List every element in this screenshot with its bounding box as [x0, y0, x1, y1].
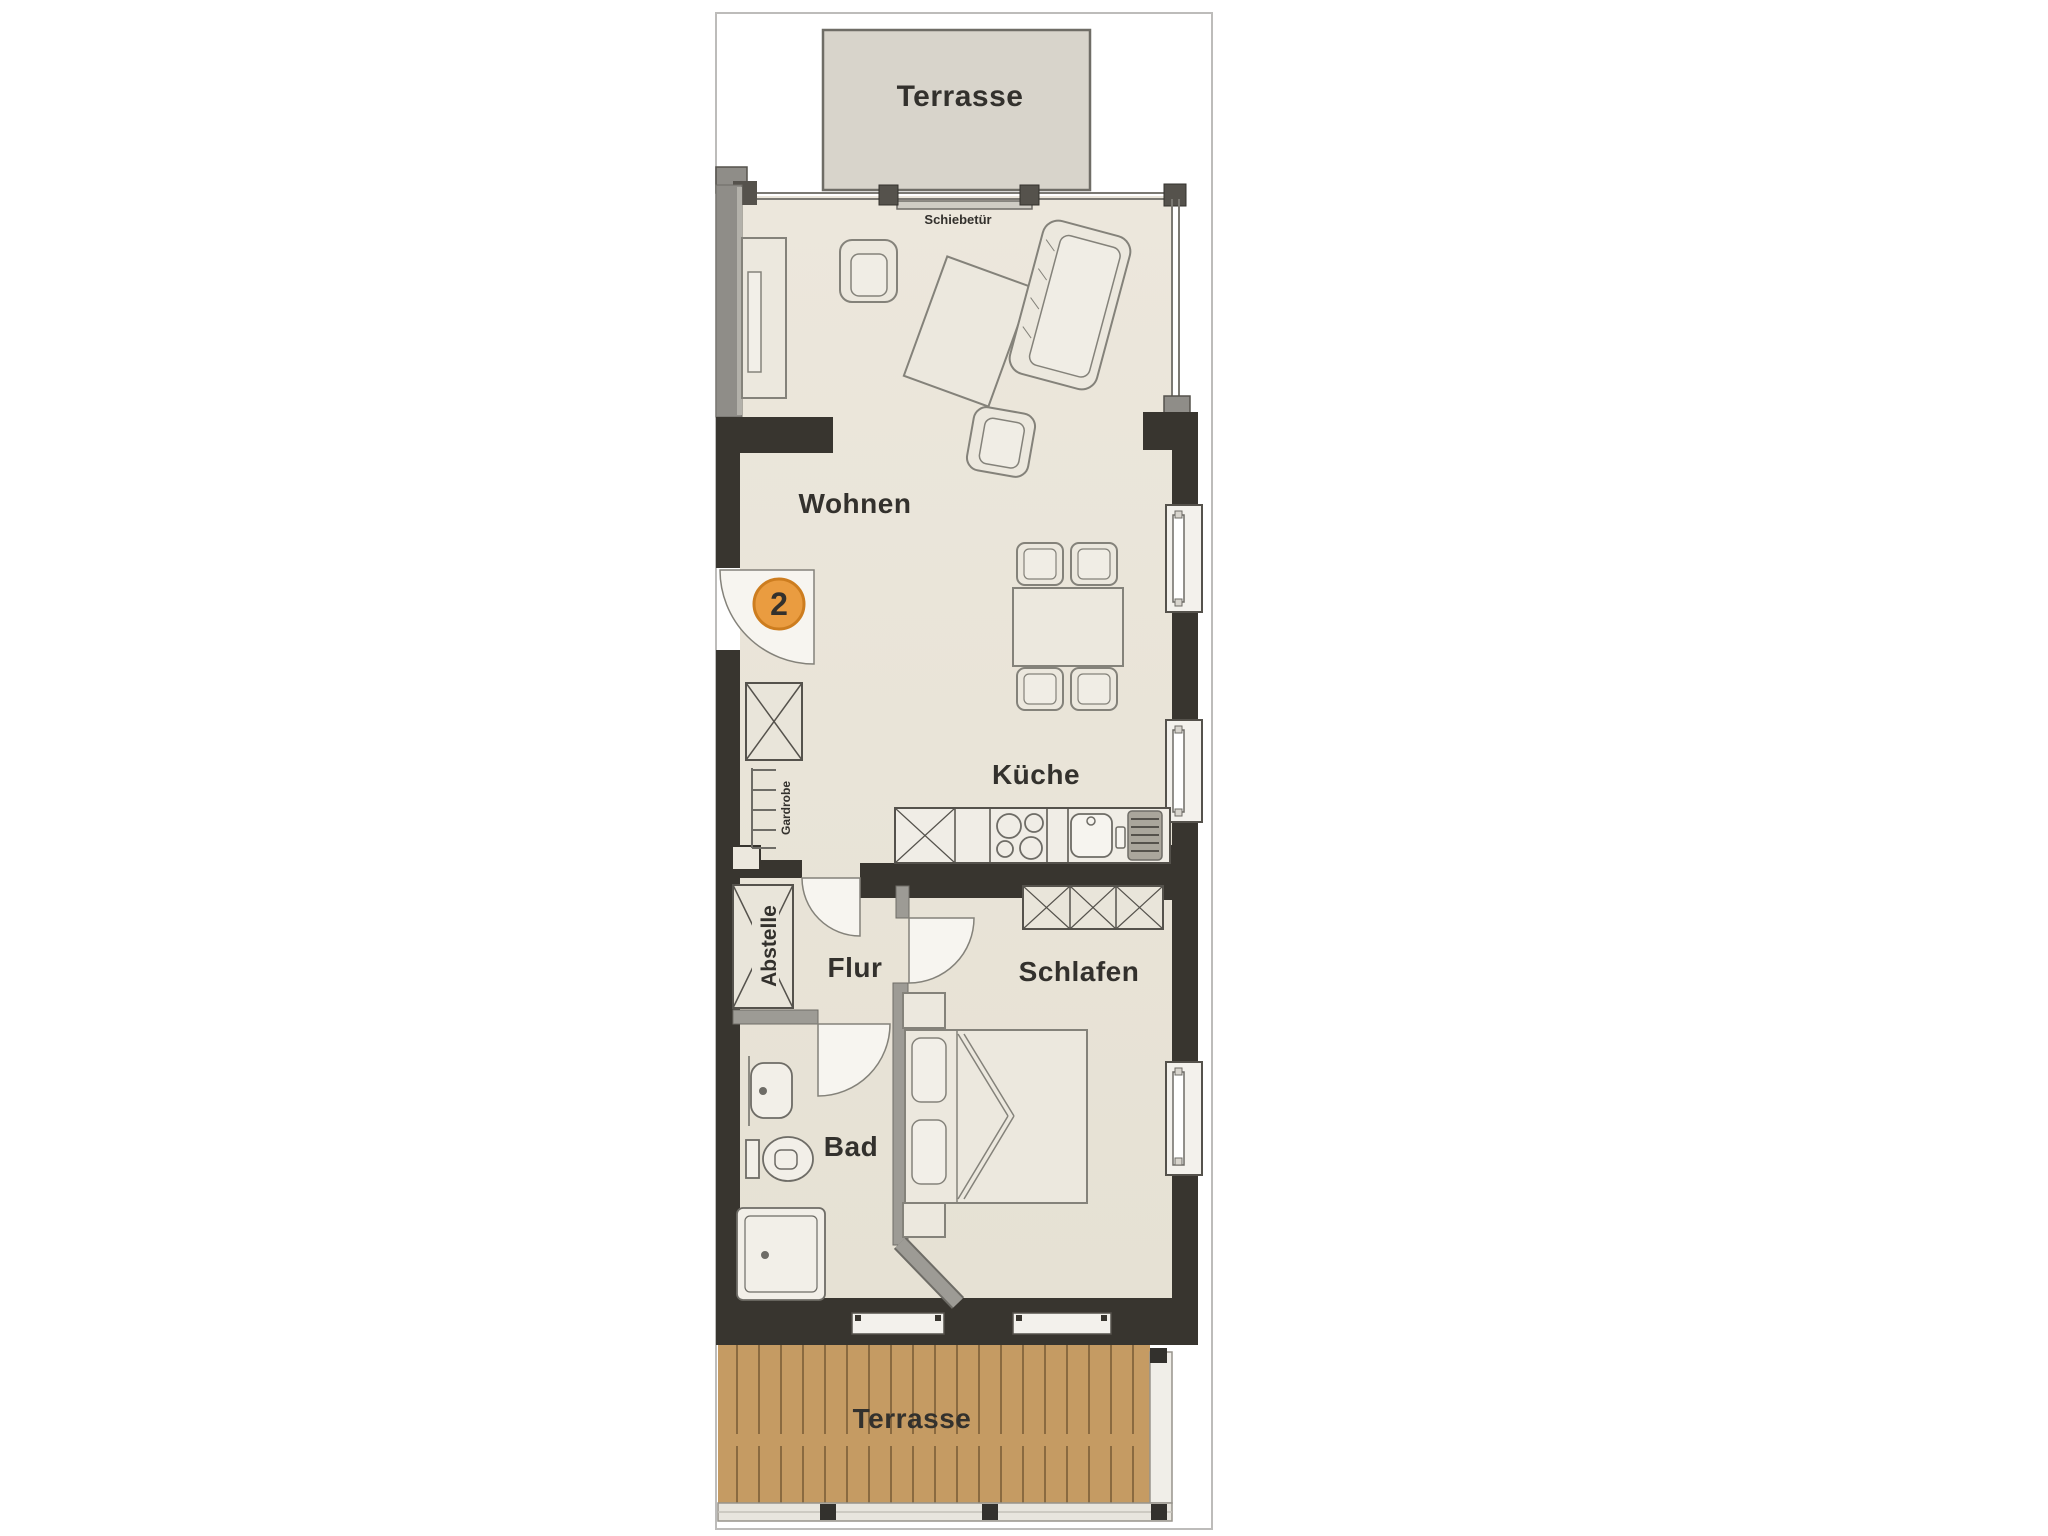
shower — [737, 1208, 825, 1300]
railing-post — [982, 1504, 998, 1520]
double-bed — [905, 1030, 1087, 1203]
wall-niche — [732, 846, 760, 870]
wall-living-left-stub — [716, 417, 833, 453]
coat-closet — [746, 683, 802, 760]
armchair-bottom — [965, 405, 1037, 479]
room-label-bedroom: Schlafen — [1019, 956, 1140, 987]
window-kitchen — [1166, 720, 1202, 822]
front-wall-post-right — [1020, 185, 1039, 205]
railing-post — [1150, 1348, 1167, 1363]
partition-bedroom-door-jamb — [896, 886, 909, 918]
unit-badge-number: 2 — [770, 586, 788, 622]
railing-post — [820, 1504, 836, 1520]
terrace-threshold-right — [1013, 1313, 1111, 1334]
wall-right-3 — [1172, 822, 1198, 1062]
kitchen-appliance — [1128, 811, 1162, 860]
sliding-door-track — [897, 201, 1032, 209]
dining-chair — [1071, 668, 1117, 710]
room-label-bath: Bad — [824, 1131, 878, 1162]
nightstand-top — [903, 993, 945, 1028]
room-label-hall: Flur — [828, 952, 883, 983]
room-label-storage: Abstelle — [758, 905, 781, 987]
terrace-threshold-left — [852, 1313, 944, 1334]
wall-bottom — [716, 1298, 1198, 1345]
floorplan-svg: Terrasse Schiebetür — [0, 0, 2048, 1536]
wall-right-2 — [1172, 612, 1198, 720]
armchair-top — [840, 240, 897, 302]
dining-chair — [1071, 543, 1117, 585]
floorplan-page: Terrasse Schiebetür — [0, 0, 2048, 1536]
dining-chair — [1017, 668, 1063, 710]
bedroom-wardrobe — [1023, 886, 1163, 929]
bath-sink — [749, 1056, 792, 1126]
railing-post — [1151, 1504, 1167, 1520]
dining-table — [1013, 588, 1123, 666]
corner-post-top-right — [1164, 184, 1186, 206]
dining-chair — [1017, 543, 1063, 585]
toilet — [746, 1137, 813, 1181]
room-label-terrace-bottom: Terrasse — [853, 1403, 972, 1434]
coat-rack-label: Gardrobe — [779, 781, 793, 835]
wall-right-1 — [1172, 412, 1198, 505]
front-wall-post-left — [879, 185, 898, 205]
sliding-door-label: Schiebetür — [924, 212, 991, 227]
nightstand-bottom — [903, 1203, 945, 1237]
room-label-terrace-top: Terrasse — [897, 80, 1024, 113]
room-label-living: Wohnen — [799, 488, 912, 519]
partition-hall-bath — [733, 1010, 818, 1024]
window-living — [1166, 505, 1202, 612]
window-bedroom — [1166, 1062, 1202, 1175]
room-label-kitchen: Küche — [992, 759, 1080, 790]
wall-left-upper — [716, 453, 740, 568]
sideboard — [742, 238, 786, 398]
